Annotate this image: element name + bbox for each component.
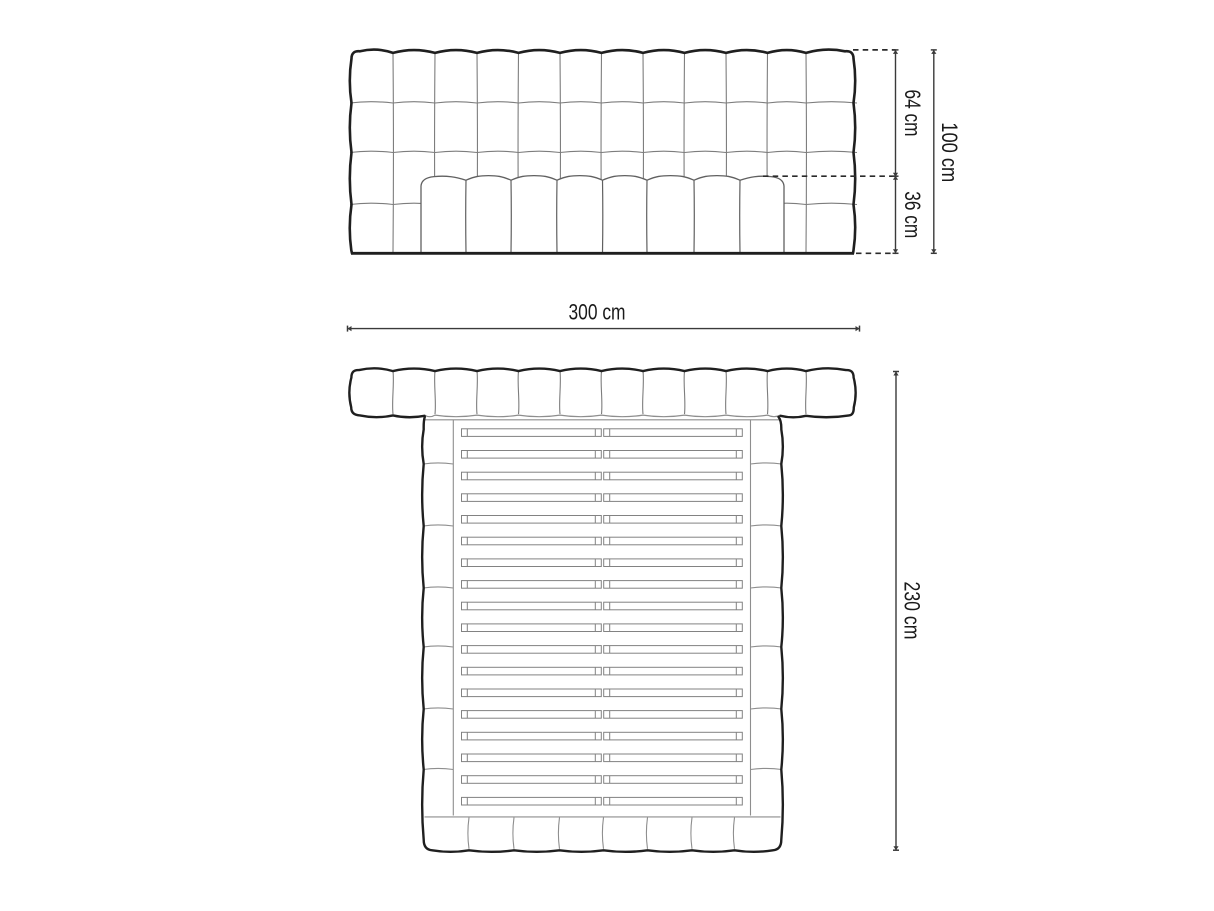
svg-text:64 cm: 64 cm xyxy=(900,90,925,137)
svg-text:100 cm: 100 cm xyxy=(937,122,962,182)
svg-text:230 cm: 230 cm xyxy=(900,582,925,640)
svg-text:300 cm: 300 cm xyxy=(569,300,626,325)
svg-text:36 cm: 36 cm xyxy=(900,191,925,238)
